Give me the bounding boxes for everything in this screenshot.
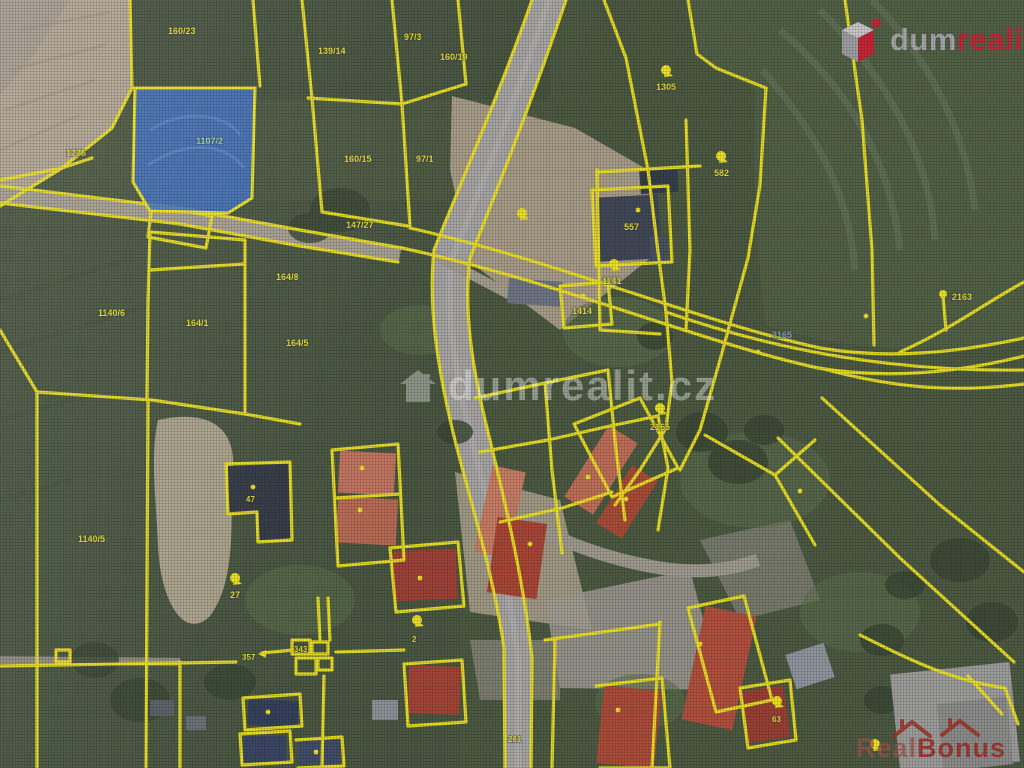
highlighted-parcel-label: 1107/2 [196,136,223,146]
parcel-label: 1140/6 [98,308,125,318]
field-label: 2165 [772,330,792,340]
dumrealit-logo-icon [836,16,882,64]
listing-map-screenshot: 160/23 139/14 97/3 160/19 1107/2 160/15 … [0,0,1024,768]
parcel-label: 343 [294,645,308,654]
parcel-label: 1414 [572,306,592,316]
parcel-label: 2163 [952,292,972,302]
logo-text-dum: dum [890,22,957,57]
parcel-label: 160/15 [344,154,372,164]
parcel-label: 160/19 [440,52,468,62]
parcel-label: 557 [624,222,639,232]
parcel-label: 97/1 [416,154,434,164]
parcel-label: 164/5 [286,338,309,348]
parcel-label: 582 [714,168,729,178]
parcel-label: 1141 [602,276,622,286]
parcel-label: 47 [246,495,255,504]
dumrealit-logo: dumrealit.cz [836,16,1024,64]
logo-text: dumrealit.cz [890,22,1024,58]
parcel-label: 2 [412,635,417,644]
parcel-label: 1140/5 [78,534,105,544]
parcel-label: 139/14 [318,46,346,56]
highlighted-parcel [133,88,255,213]
parcel-label: 164/1 [186,318,209,328]
parcel-label: 63 [772,715,781,724]
parcel-label: 27 [230,590,240,600]
parcel-label: 1276 [66,148,86,158]
parcel-label: 164/8 [276,272,299,282]
parcel-label: 261 [508,735,522,744]
parcel-label: 97/3 [404,32,422,42]
parcel-label: 2165 [650,422,670,432]
parcel-label: 357 [242,653,256,662]
parcel-label: 147/27 [346,220,374,230]
logo-text-realit: realit [957,22,1024,57]
parcel-label: 1305 [656,82,676,92]
satellite-map: 160/23 139/14 97/3 160/19 1107/2 160/15 … [0,0,1024,768]
parcel-label: 160/23 [168,26,196,36]
